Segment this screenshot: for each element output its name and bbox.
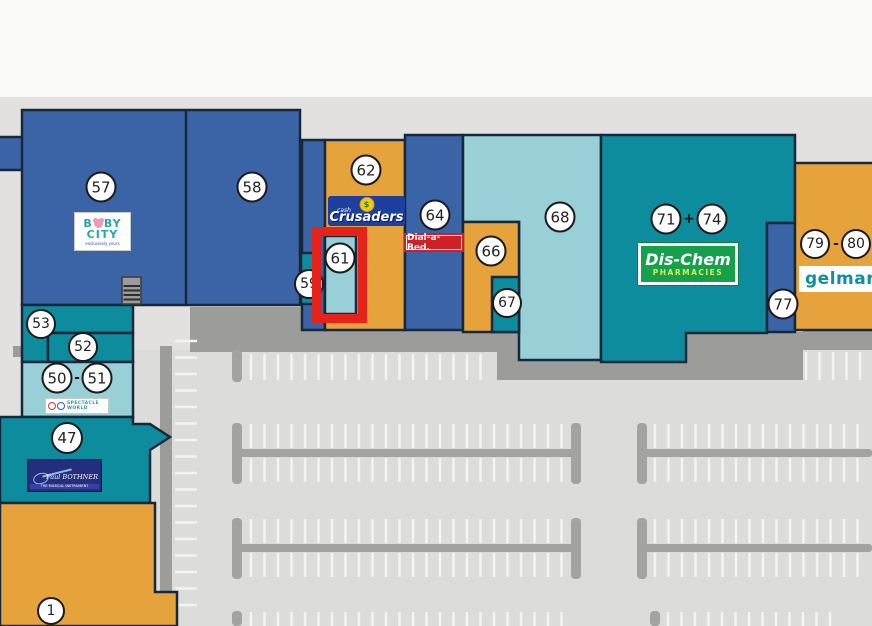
floor-plan-canvas <box>0 0 872 626</box>
baby-city-logo: BBY CITY exclusively yours <box>74 212 131 251</box>
spectacle-world-name-line2: WORLD <box>67 406 99 411</box>
baby-city-tagline: exclusively yours <box>85 242 119 246</box>
unit-circle-51[interactable]: 51 <box>82 363 113 394</box>
service-road <box>686 332 803 380</box>
unit-circle-68[interactable]: 68 <box>545 202 576 233</box>
cash-crusaders-name: Crusaders <box>328 210 405 225</box>
paul-bothner-logo: Paul BOTHNER THE MUSICAL INSTRUMENT SPEC… <box>27 459 102 492</box>
baby-city-name-line2: CITY <box>87 229 119 240</box>
spectacle-world-glasses-icon <box>57 402 65 410</box>
unit-57-58-block[interactable] <box>22 110 300 305</box>
baby-city-bear-icon <box>94 219 103 228</box>
unit-57-annex-shape[interactable] <box>0 137 24 170</box>
top-margin <box>0 0 872 97</box>
dis-chem-name: Dis-Chem <box>645 251 731 269</box>
unit-circle-79[interactable]: 79 <box>800 229 830 259</box>
baby-city-name: BBY <box>83 218 121 229</box>
unit-circle-53[interactable]: 53 <box>26 309 56 339</box>
unit-circle-61[interactable]: 61 <box>325 243 356 274</box>
gelmar-name: gelmar <box>805 269 872 289</box>
unit-circle-71[interactable]: 71 <box>651 204 682 235</box>
unit-pair-separator-79-80: - <box>833 236 839 252</box>
unit-circle-52[interactable]: 52 <box>68 332 98 362</box>
service-road <box>13 346 21 357</box>
dis-chem-pharmacies-text: PHARMACIES <box>653 269 723 277</box>
parking-lot <box>133 350 872 626</box>
dial-a-bed-logo: Dial-a-Bed. <box>404 233 464 252</box>
service-road <box>190 307 303 352</box>
unit-circle-57[interactable]: 57 <box>86 172 117 203</box>
service-road <box>803 330 872 350</box>
unit-circle-62[interactable]: 62 <box>351 155 382 186</box>
unit-pair-separator-71-74: + <box>683 211 695 227</box>
paul-bothner-name: Paul BOTHNER <box>46 473 98 481</box>
unit-circle-58[interactable]: 58 <box>237 172 268 203</box>
unit-circle-50[interactable]: 50 <box>42 363 73 394</box>
unit-pair-separator-50-51: - <box>74 370 80 386</box>
dis-chem-logo: Dis-Chem PHARMACIES <box>638 243 738 285</box>
dial-a-bed-name: Dial-a-Bed. <box>406 235 462 250</box>
service-road <box>303 330 519 352</box>
unit-1-shape[interactable] <box>0 503 177 626</box>
unit-circle-1[interactable]: 1 <box>37 597 65 625</box>
unit-circle-47[interactable]: 47 <box>51 422 83 454</box>
mall-floor-plan: 57 58 59 61 62 64 66 67 68 71 74 77 79 8… <box>0 0 872 626</box>
spectacle-world-glasses-icon <box>48 402 56 410</box>
unit-circle-66[interactable]: 66 <box>476 236 507 267</box>
stairs-icon <box>122 277 141 304</box>
highlighted-unit-box[interactable] <box>312 227 367 323</box>
unit-circle-77[interactable]: 77 <box>768 289 799 320</box>
paul-bothner-tagline: THE MUSICAL INSTRUMENT SPECIALISTS <box>30 484 99 489</box>
gelmar-logo: gelmar <box>799 266 872 292</box>
cash-crusaders-logo: $ cash Crusaders <box>328 196 405 226</box>
spectacle-world-logo: SPECTACLE WORLD <box>45 398 109 414</box>
unit-circle-64[interactable]: 64 <box>420 200 451 231</box>
unit-circle-67[interactable]: 67 <box>492 288 522 318</box>
unit-circle-74[interactable]: 74 <box>697 204 728 235</box>
parking-lane-divider <box>160 346 172 626</box>
unit-circle-80[interactable]: 80 <box>841 229 871 259</box>
